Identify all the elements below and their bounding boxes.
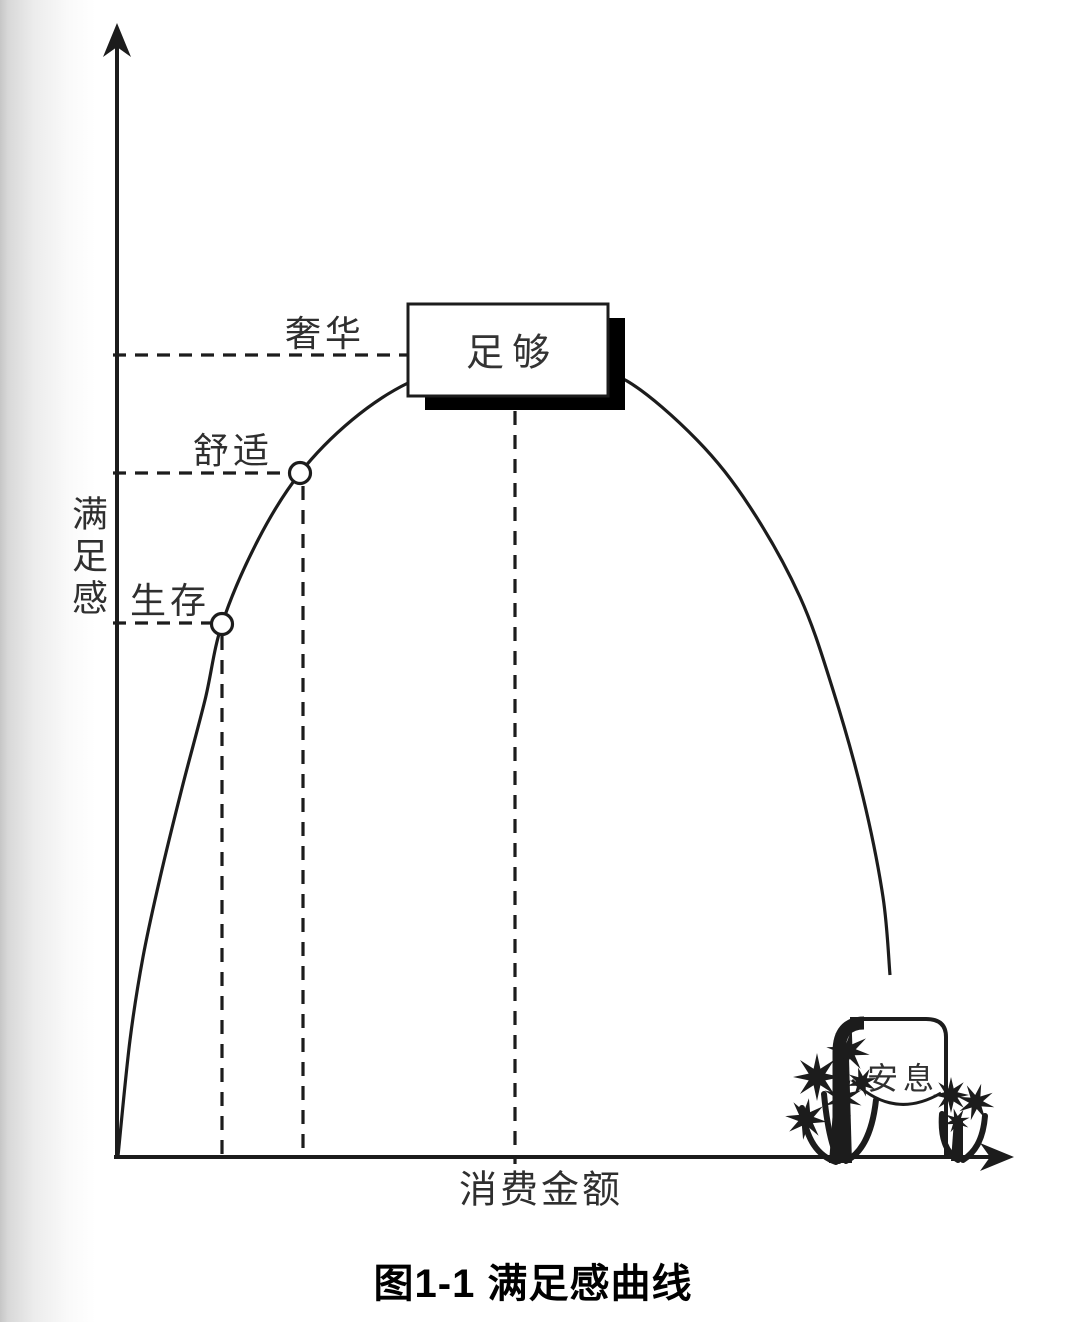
y-axis-label: 满足感 xyxy=(61,495,113,621)
comfort-level-label: 舒适 xyxy=(193,422,273,474)
flower-stem-right-1 xyxy=(963,1116,985,1160)
scanned-book-page: 生存 舒适 奢华 满足感 消费金额 足够 安息 图1-1 满足感曲线 xyxy=(0,0,1066,1322)
enough-box-label: 足够 xyxy=(466,322,558,377)
tombstone-label: 安息 xyxy=(867,1054,939,1099)
flower-blossom-right-1 xyxy=(958,1084,995,1121)
satisfaction-curve xyxy=(118,362,890,1156)
x-axis-label: 消费金额 xyxy=(459,1159,623,1214)
figure-caption: 图1-1 满足感曲线 xyxy=(374,1251,693,1309)
survival-level-label: 生存 xyxy=(130,572,210,624)
curve-point-marker-1 xyxy=(290,463,311,484)
luxury-level-label: 奢华 xyxy=(285,305,365,357)
figure-canvas xyxy=(0,0,1066,1322)
curve-point-marker-0 xyxy=(212,614,233,635)
